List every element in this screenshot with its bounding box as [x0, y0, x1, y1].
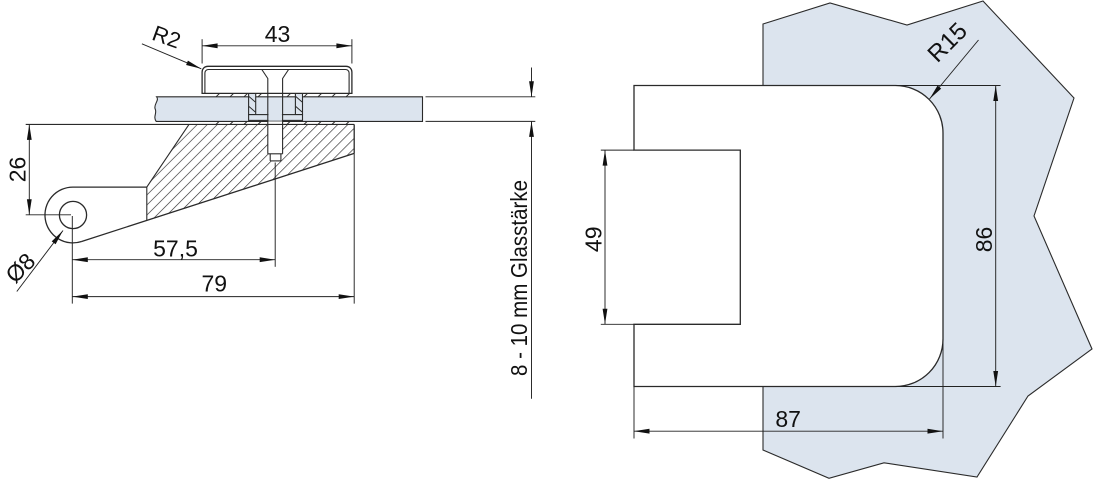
svg-text:57,5: 57,5: [153, 236, 198, 262]
svg-text:79: 79: [202, 271, 228, 297]
svg-text:87: 87: [775, 406, 801, 432]
svg-text:Ø8: Ø8: [0, 248, 40, 288]
svg-text:8 - 10 mm Glasstärke: 8 - 10 mm Glasstärke: [506, 180, 532, 376]
svg-text:49: 49: [581, 227, 607, 253]
svg-text:86: 86: [971, 227, 997, 253]
svg-text:43: 43: [265, 21, 291, 47]
svg-text:26: 26: [5, 157, 31, 183]
